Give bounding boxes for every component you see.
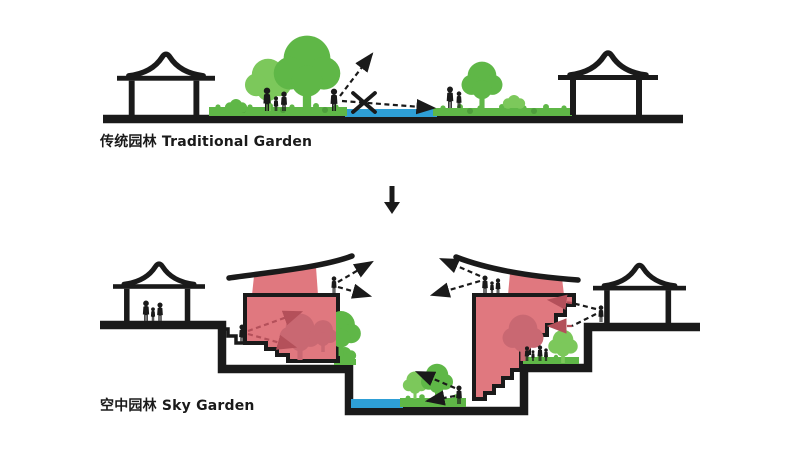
bush (225, 99, 247, 113)
section-label-traditional-garden: 传统园林 Traditional Garden (100, 131, 312, 151)
transition-down-arrow-icon (384, 186, 400, 214)
pavilion-right (558, 53, 658, 115)
tree (462, 62, 503, 108)
sky-view-arrow (340, 54, 372, 96)
valley-pond-water (351, 399, 403, 408)
pond-water (345, 109, 437, 117)
sky-garden-section (100, 256, 700, 411)
view-arrows (340, 54, 434, 108)
diagram-canvas (0, 0, 800, 458)
traditional-garden-section (103, 36, 683, 119)
bush (503, 95, 525, 109)
terraced-building-right (456, 257, 578, 399)
pavilion-right (593, 265, 686, 323)
garden-diagram-stage: 传统园林 Traditional Garden 空中园林 Sky Garden (0, 0, 800, 458)
blocked-view-arrow (342, 101, 434, 108)
terraced-building-left (229, 256, 361, 361)
valley-lawn (400, 394, 466, 407)
tree (421, 364, 453, 400)
section-label-sky-garden: 空中园林 Sky Garden (100, 395, 255, 415)
lawn-right (433, 104, 572, 116)
pavilion-left (117, 54, 215, 115)
